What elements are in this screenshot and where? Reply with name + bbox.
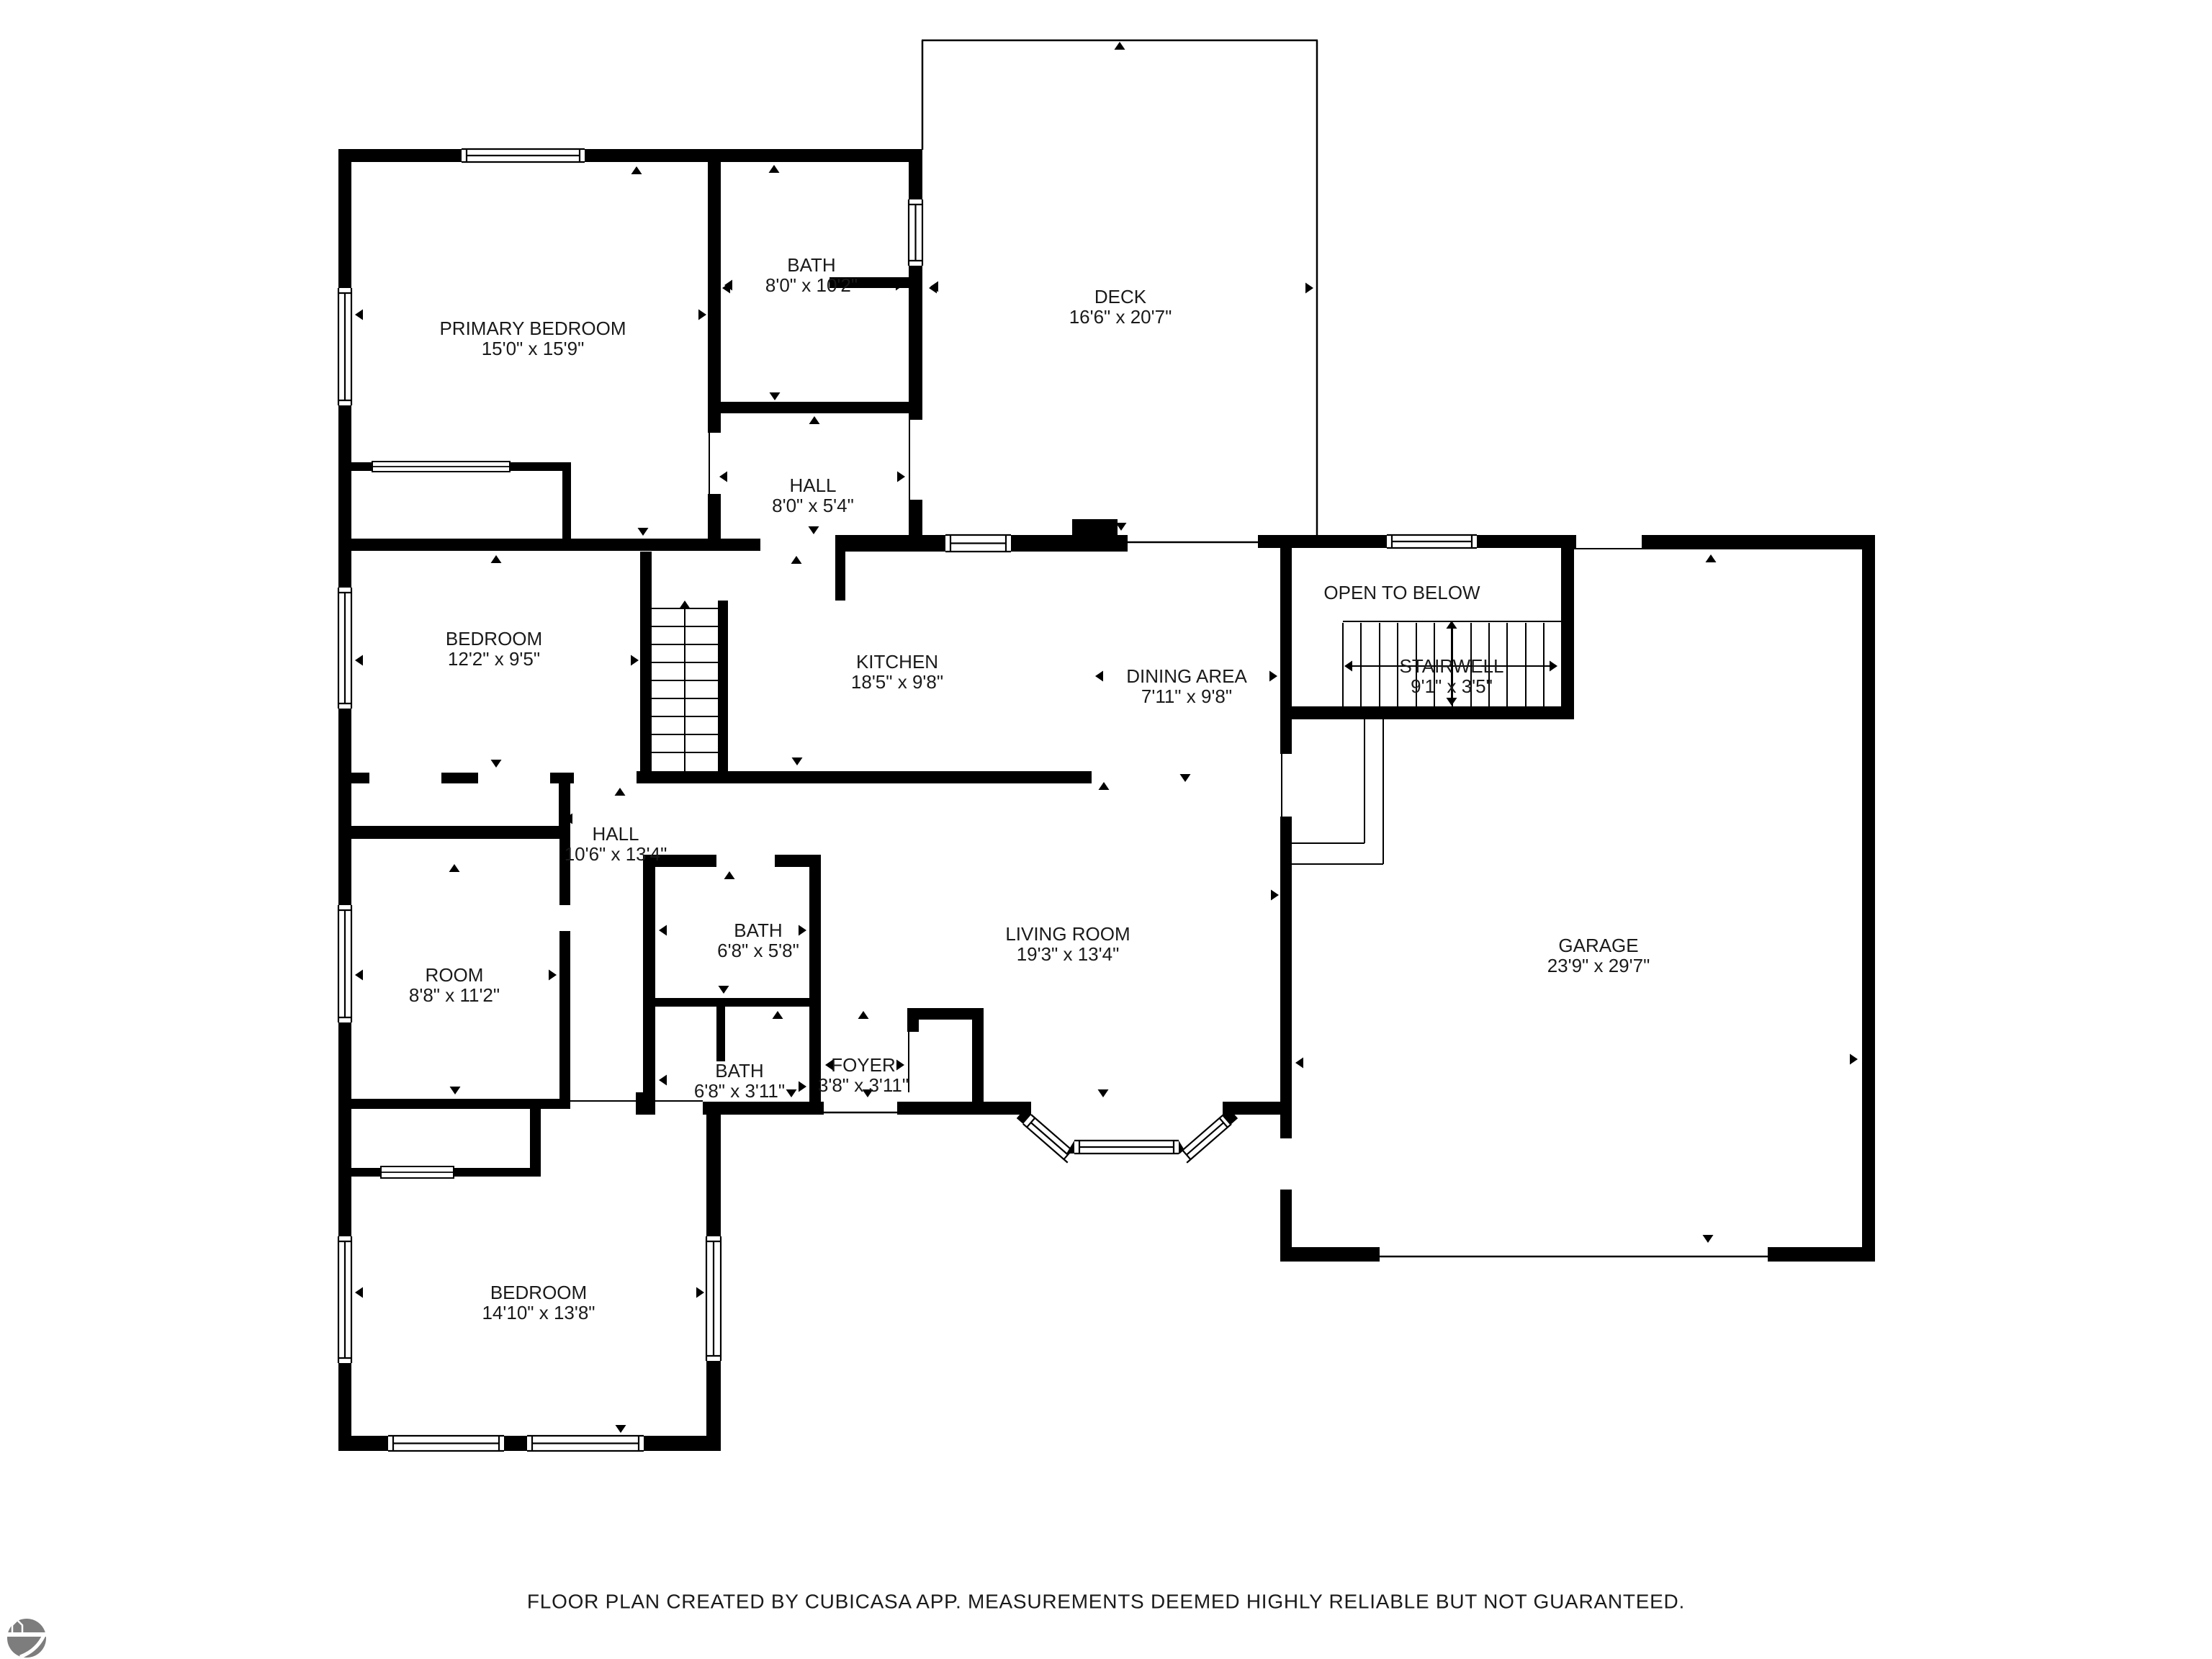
- svg-text:STAIRWELL: STAIRWELL: [1400, 655, 1504, 677]
- svg-text:DECK: DECK: [1094, 286, 1147, 307]
- svg-text:BATH: BATH: [715, 1060, 763, 1082]
- svg-text:8'0" x 10'2": 8'0" x 10'2": [765, 274, 858, 296]
- svg-text:23'9" x 29'7": 23'9" x 29'7": [1547, 955, 1650, 976]
- svg-text:FLOOR PLAN CREATED BY CUBICASA: FLOOR PLAN CREATED BY CUBICASA APP. MEAS…: [527, 1591, 1685, 1613]
- svg-text:BEDROOM: BEDROOM: [490, 1282, 587, 1303]
- svg-text:PRIMARY BEDROOM: PRIMARY BEDROOM: [439, 318, 626, 339]
- svg-text:HALL: HALL: [789, 475, 836, 496]
- svg-text:6'8" x 3'11": 6'8" x 3'11": [694, 1080, 785, 1102]
- svg-text:9'1" x 3'5": 9'1" x 3'5": [1411, 675, 1493, 697]
- svg-text:BATH: BATH: [734, 920, 782, 941]
- svg-text:12'2" x 9'5": 12'2" x 9'5": [448, 648, 540, 670]
- svg-text:8'0" x 5'4": 8'0" x 5'4": [772, 495, 854, 516]
- svg-text:KITCHEN: KITCHEN: [856, 651, 938, 673]
- svg-text:7'11" x 9'8": 7'11" x 9'8": [1141, 685, 1232, 707]
- svg-text:18'5" x 9'8": 18'5" x 9'8": [851, 671, 943, 693]
- svg-text:DINING AREA: DINING AREA: [1126, 665, 1247, 687]
- svg-text:BEDROOM: BEDROOM: [446, 628, 542, 649]
- svg-text:ROOM: ROOM: [426, 964, 484, 986]
- svg-text:10'6" x 13'4": 10'6" x 13'4": [565, 843, 667, 865]
- svg-text:FOYER: FOYER: [831, 1054, 896, 1076]
- svg-text:OPEN TO BELOW: OPEN TO BELOW: [1323, 582, 1480, 603]
- svg-text:GARAGE: GARAGE: [1558, 935, 1638, 956]
- svg-text:8'8" x 11'2": 8'8" x 11'2": [409, 984, 500, 1006]
- svg-text:16'6" x 20'7": 16'6" x 20'7": [1069, 306, 1172, 328]
- svg-text:HALL: HALL: [592, 823, 639, 845]
- svg-text:14'10" x 13'8": 14'10" x 13'8": [482, 1302, 595, 1323]
- svg-text:3'8" x 3'11": 3'8" x 3'11": [818, 1074, 909, 1096]
- svg-text:LIVING ROOM: LIVING ROOM: [1005, 923, 1130, 945]
- svg-text:19'3" x 13'4": 19'3" x 13'4": [1017, 943, 1120, 965]
- svg-text:6'8" x 5'8": 6'8" x 5'8": [717, 940, 799, 961]
- svg-text:BATH: BATH: [787, 254, 835, 276]
- svg-text:15'0" x 15'9": 15'0" x 15'9": [482, 338, 585, 359]
